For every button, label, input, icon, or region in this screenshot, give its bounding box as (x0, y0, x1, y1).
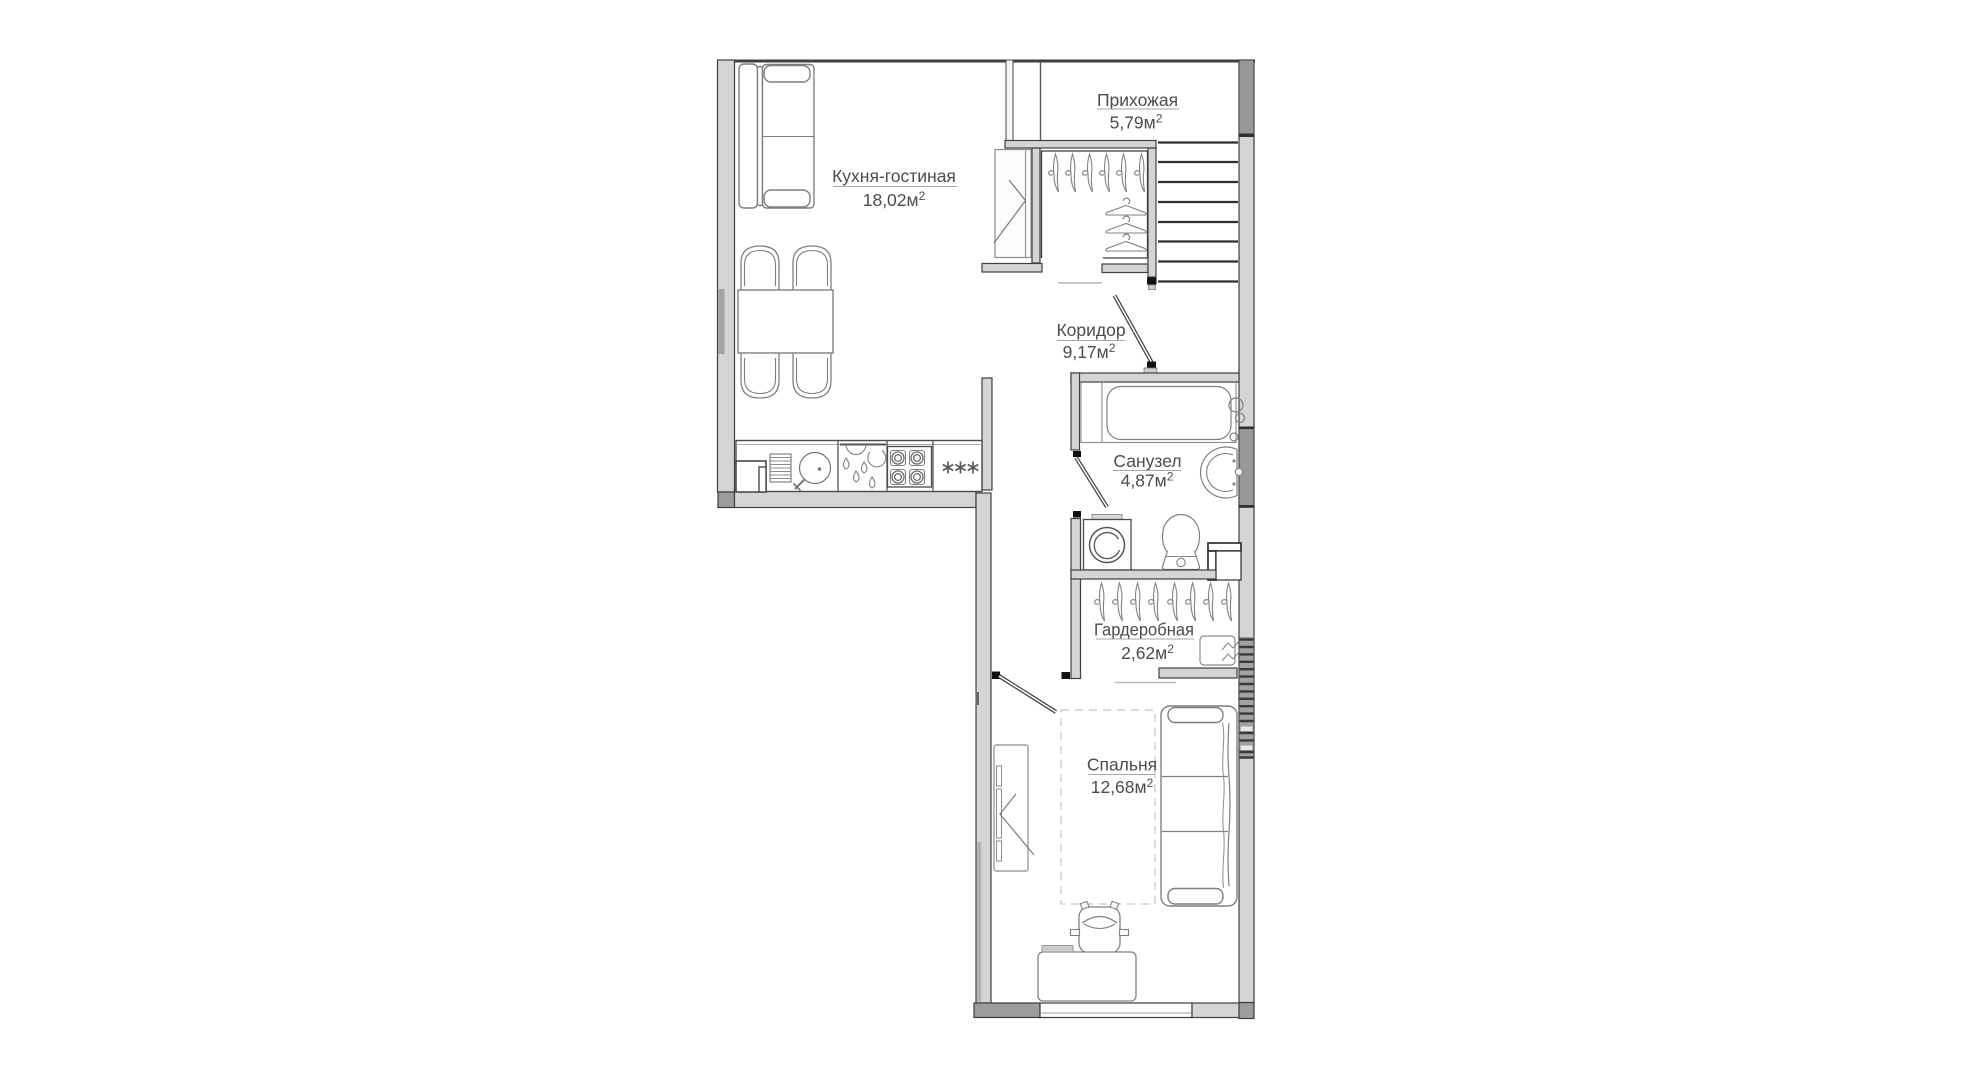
svg-text:Спальня: Спальня (1087, 755, 1157, 775)
svg-text:Гардеробная: Гардеробная (1094, 620, 1194, 640)
svg-text:Санузел: Санузел (1113, 451, 1181, 471)
svg-text:4,87м2: 4,87м2 (1121, 470, 1174, 491)
svg-text:9,17м2: 9,17м2 (1063, 341, 1116, 362)
svg-text:12,68м2: 12,68м2 (1091, 776, 1154, 797)
svg-text:Коридор: Коридор (1056, 320, 1125, 340)
svg-text:2,62м2: 2,62м2 (1121, 642, 1174, 663)
svg-text:18,02м2: 18,02м2 (863, 189, 926, 210)
svg-text:Прихожая: Прихожая (1097, 90, 1178, 110)
svg-text:Кухня-гостиная: Кухня-гостиная (832, 166, 956, 186)
svg-text:5,79м2: 5,79м2 (1110, 112, 1163, 133)
